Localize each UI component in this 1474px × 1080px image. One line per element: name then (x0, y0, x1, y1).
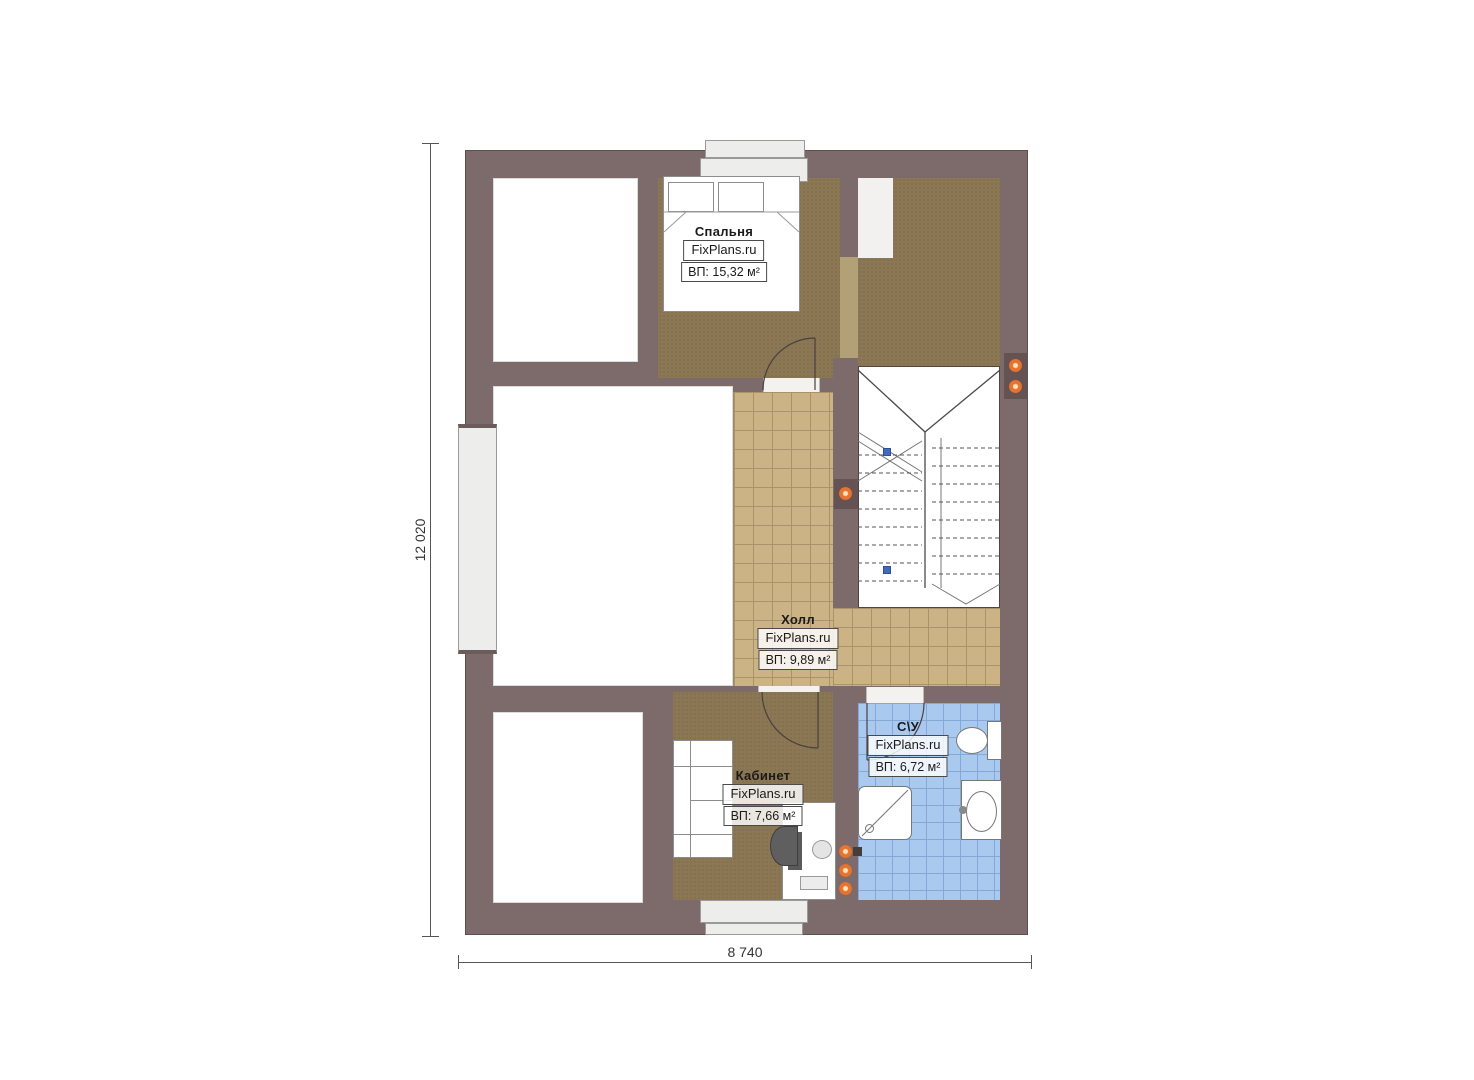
room-bottom-left (493, 712, 643, 903)
wall-dot-icon (839, 845, 852, 858)
bedroom-label: Спальня FixPlans.ru ВП: 15,32 м² (681, 224, 767, 282)
bed-pillow-left (668, 182, 714, 212)
stair-marker-icon (883, 448, 891, 456)
hall-floor-under-stairs (833, 608, 1000, 686)
left-window (458, 424, 497, 654)
office-area: ВП: 7,66 м² (724, 806, 803, 826)
bathroom-label: С\У FixPlans.ru ВП: 6,72 м² (867, 719, 948, 777)
dimension-tick (422, 936, 439, 937)
office-label: Кабинет FixPlans.ru ВП: 7,66 м² (722, 768, 803, 826)
bedroom-name: Спальня (695, 224, 753, 239)
hall-area: ВП: 9,89 м² (759, 650, 838, 670)
dimension-tick (422, 143, 439, 144)
top-window-sill (705, 140, 805, 158)
stairwell (858, 366, 1000, 608)
sink-bowl (966, 791, 997, 832)
wall-dot-icon (839, 882, 852, 895)
office-watermark: FixPlans.ru (722, 784, 803, 805)
hall-label: Холл FixPlans.ru ВП: 9,89 м² (757, 612, 838, 670)
bathroom-door-opening (866, 687, 924, 703)
bedroom-watermark: FixPlans.ru (683, 240, 764, 261)
wall-dot-icon (839, 864, 852, 877)
sofa-back-line (690, 741, 691, 857)
toilet-tank (987, 721, 1002, 760)
sofa-armrest-line-bottom (674, 834, 732, 835)
chimney-niche (858, 178, 893, 258)
bathroom-name: С\У (897, 719, 919, 734)
bottom-window-sill (705, 923, 803, 935)
bottom-window (700, 900, 808, 923)
floor-plan-page: Спальня FixPlans.ru ВП: 15,32 м² Холл Fi… (0, 0, 1474, 1080)
sink-faucet (959, 806, 967, 814)
hall-watermark: FixPlans.ru (757, 628, 838, 649)
horizontal-dimension-line (458, 962, 1032, 963)
office-chair (770, 826, 798, 866)
bedroom-door-opening (763, 378, 820, 392)
bathroom-area: ВП: 6,72 м² (869, 757, 948, 777)
keyboard (812, 840, 832, 859)
wall-dot-icon (1009, 380, 1022, 393)
office-name: Кабинет (736, 768, 791, 783)
room-top-left (493, 178, 638, 362)
printer (800, 876, 828, 890)
vertical-dimension-line (430, 143, 431, 937)
stair-marker-icon (883, 566, 891, 574)
toilet-bowl (956, 727, 988, 754)
bathroom-watermark: FixPlans.ru (867, 735, 948, 756)
horizontal-dimension-label: 8 740 (700, 944, 790, 960)
wall-switch-icon (853, 847, 862, 856)
sofa-armrest-line-top (674, 766, 732, 767)
wall-dot-icon (839, 487, 852, 500)
wall-dot-icon (1009, 359, 1022, 372)
shower-drain (865, 824, 874, 833)
dimension-tick (458, 955, 459, 969)
bedroom-area: ВП: 15,32 м² (681, 262, 767, 282)
room-middle-left (493, 386, 733, 686)
vertical-dimension-label: 12 020 (412, 500, 428, 580)
bedroom-passage-floor (840, 257, 858, 358)
bed-pillow-right (718, 182, 764, 212)
office-door-opening (758, 686, 820, 692)
dimension-tick (1031, 955, 1032, 969)
hall-name: Холл (781, 612, 815, 627)
